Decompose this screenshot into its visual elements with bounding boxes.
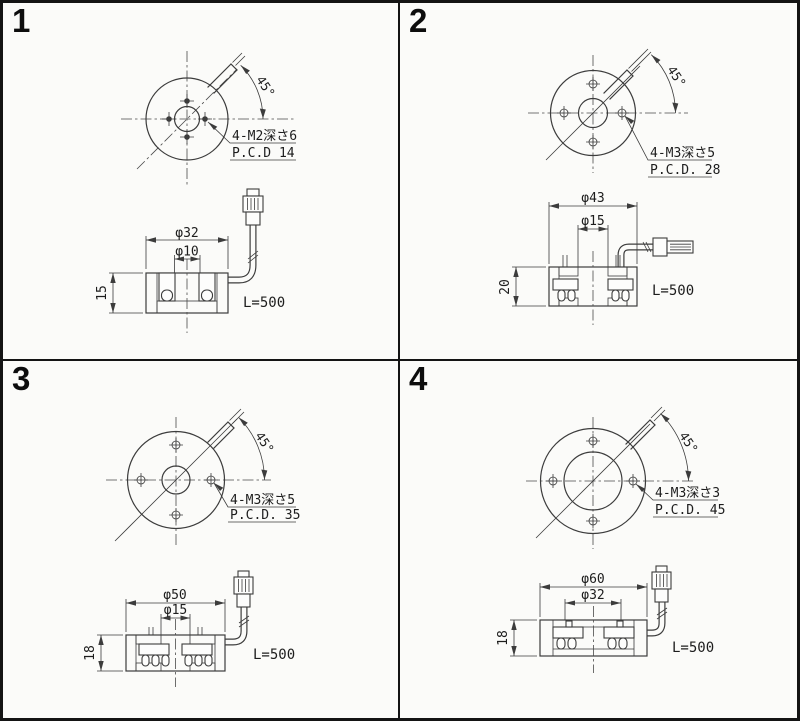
height-label: 20 [498,279,513,295]
outer-diameter-label: φ43 [581,191,604,206]
led-bulb [202,290,213,301]
pcd-note: P.C.D. 35 [230,508,300,523]
led-bulb [162,655,169,666]
panel-1: 1 [3,3,400,361]
inner-diameter-label: φ15 [581,214,604,229]
panel-1-drawing: 45° 4-M2深さ6 P.C.D 14 [3,3,398,359]
mounting-studs [563,255,620,267]
angle-dimension: 45° [651,55,689,113]
outer-diameter-label: φ50 [163,588,186,603]
led-bulb [622,290,629,301]
side-view: φ50 φ15 18 L=500 [83,571,295,687]
inner-diameter-dimension: φ32 [565,588,621,620]
top-view: 45° 4-M3深さ3 P.C.D. 45 [526,407,725,549]
outer-diameter-label: φ32 [175,226,198,241]
cable-length-label: L=500 [253,647,295,663]
height-dimension: 18 [83,635,123,671]
led-holder [553,627,583,638]
connector [243,189,263,225]
height-label: 18 [83,645,98,661]
thread-note: 4-M3深さ3 [655,486,720,501]
led-bulb [195,655,202,666]
side-view: φ32 φ10 15 L=500 [95,189,285,333]
led-bulb [612,290,619,301]
height-dimension: 18 [496,620,537,656]
angle-label: 45° [252,429,277,456]
angle-dimension: 45° [241,65,279,119]
cable [647,601,667,633]
body-section [540,606,647,673]
panel-3: 3 [3,361,400,718]
angle-dimension: 45° [661,414,702,482]
led-bulb [142,655,149,666]
connector [652,566,671,602]
cable-length-label: L=500 [652,283,694,299]
thread-note: 4-M3深さ5 [230,493,295,508]
angle-label: 45° [676,429,701,456]
panel-4-number: 4 [409,361,426,397]
mounting-stud [566,621,572,627]
body-section [126,619,225,687]
panel-4-drawing: 45° 4-M3深さ3 P.C.D. 45 [400,361,795,718]
panel-3-drawing: 45° 4-M3深さ5 P.C.D. 35 [3,361,398,718]
led-holder [182,644,212,655]
panel-3-number: 3 [12,361,29,397]
inner-diameter-label: φ15 [164,603,187,618]
drawing-sheet: 1 [0,0,800,721]
leader-note: 4-M3深さ5 P.C.D. 35 [214,483,300,523]
led-bulb [152,655,159,666]
height-dimension: 15 [95,273,143,313]
angle-label: 45° [664,63,689,90]
height-label: 15 [95,285,110,301]
body-section [146,259,228,333]
top-view: 45° 4-M2深さ6 P.C.D 14 [121,51,297,187]
panel-1-number: 1 [12,3,29,39]
outer-diameter-label: φ60 [581,572,604,587]
leader-note: 4-M3深さ5 P.C.D. 28 [625,116,720,178]
led-bulb [568,290,575,301]
led-bulb [162,290,173,301]
pcd-note: P.C.D 14 [232,146,295,161]
cable [228,224,258,280]
angle-dimension: 45° [239,417,278,480]
led-holder [553,279,578,290]
cable-length-label: L=500 [672,640,714,656]
connector [234,571,253,607]
height-dimension: 20 [498,267,546,306]
led-bulb [619,638,627,649]
top-view: 45° 4-M3深さ5 P.C.D. 28 [528,49,720,178]
thread-note: 4-M2深さ6 [232,129,297,144]
inner-diameter-label: φ10 [175,245,198,260]
led-holder [604,627,634,638]
led-bulb [608,638,616,649]
height-label: 18 [496,630,511,646]
led-holder [608,279,633,290]
mounting-stud [617,621,623,627]
panel-4: 4 [400,361,797,718]
centerlines [106,417,271,547]
led-bulb [185,655,192,666]
panel-2: 2 [400,3,797,361]
panel-2-number: 2 [409,3,426,39]
top-view: 45° 4-M3深さ5 P.C.D. 35 [106,409,300,547]
led-bulb [568,638,576,649]
panel-2-drawing: 45° 4-M3深さ5 P.C.D. 28 [400,3,795,359]
side-view: φ43 φ15 20 L=500 [498,191,694,325]
led-bulb [205,655,212,666]
led-bulb [557,638,565,649]
led-holder [139,644,169,655]
inner-diameter-label: φ32 [581,588,604,603]
pcd-note: P.C.D. 45 [655,503,725,518]
centerlines [526,417,696,549]
side-view: φ60 φ32 18 L=500 [496,566,714,673]
pcd-note: P.C.D. 28 [650,163,720,178]
thread-note: 4-M3深さ5 [650,146,715,161]
angle-label: 45° [253,73,278,100]
led-bulb [558,290,565,301]
leader-note: 4-M3深さ3 P.C.D. 45 [636,484,725,518]
connector [653,238,693,256]
cable [225,606,249,642]
cable-length-label: L=500 [243,295,285,311]
